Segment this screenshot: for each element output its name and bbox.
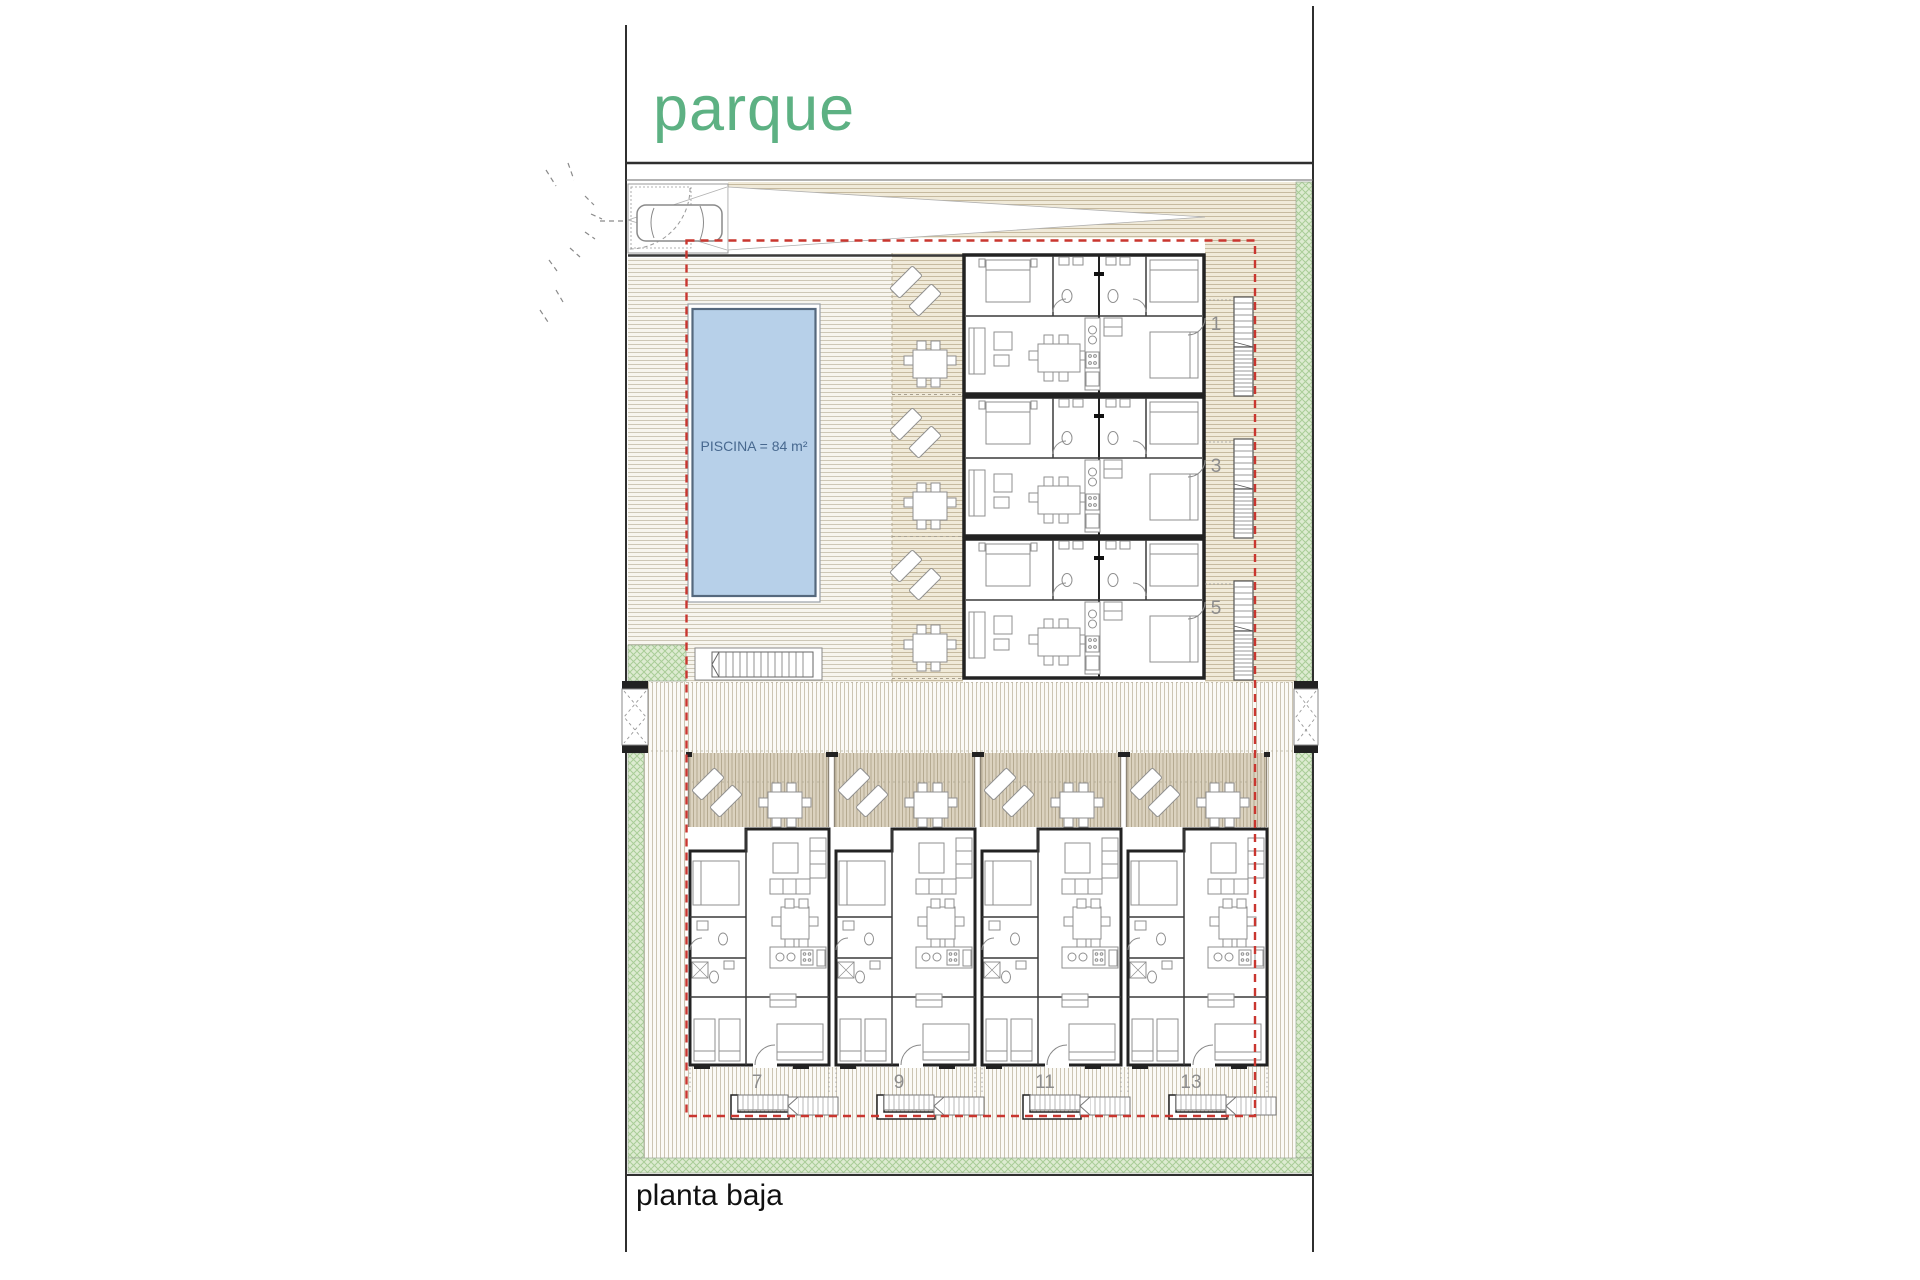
floor-label: planta baja xyxy=(636,1179,783,1212)
gate-east xyxy=(1294,681,1318,753)
unit-number-13: 13 xyxy=(1180,1072,1201,1093)
unit-number-9: 9 xyxy=(894,1072,905,1093)
townhouse-unit-11 xyxy=(978,752,1130,1119)
pool: PISCINA = 84 m² xyxy=(688,304,820,602)
park-label: parque xyxy=(653,74,855,144)
townhouse-unit-7 xyxy=(686,752,838,1119)
townhouse-unit-9 xyxy=(832,752,984,1119)
unit-number-1: 1 xyxy=(1211,314,1222,335)
townhouse-unit-13 xyxy=(1124,752,1276,1119)
unit-number-5: 5 xyxy=(1211,598,1222,619)
gate-west xyxy=(622,681,648,753)
pool-label: PISCINA = 84 m² xyxy=(701,438,808,454)
unit-number-11: 11 xyxy=(1035,1072,1055,1093)
floor-plan-svg: PISCINA = 84 m² 1 3 5 7 9 11 13 xyxy=(0,0,1920,1280)
floor-plan-page: PISCINA = 84 m² 1 3 5 7 9 11 13 xyxy=(0,0,1920,1280)
unit-number-3: 3 xyxy=(1211,456,1222,477)
tree-icon xyxy=(540,163,626,322)
pool-stairs xyxy=(695,648,822,680)
unit-number-7: 7 xyxy=(752,1072,763,1093)
